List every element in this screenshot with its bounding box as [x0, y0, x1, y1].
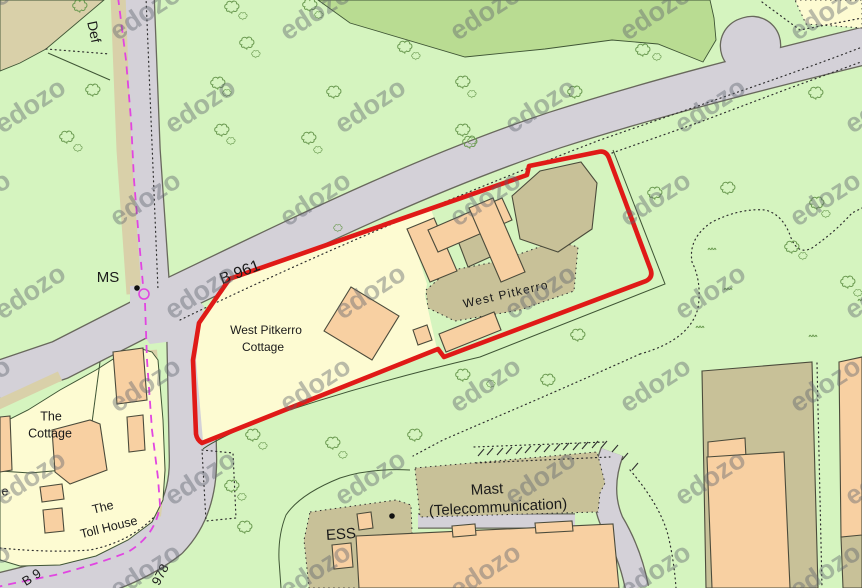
building-cottage-out-2	[127, 415, 145, 452]
building-bottom-tab-2	[535, 521, 573, 533]
building-cottage-out-1	[40, 484, 64, 502]
road-layby-bulge	[749, 45, 752, 46]
building-tollhouse	[43, 508, 64, 533]
label-the-cottage-2: Cottage	[28, 426, 72, 440]
building-ess-hut-1	[357, 512, 373, 530]
mast-symbol-dot-ms	[134, 285, 140, 291]
label-west-pitkerro-cottage-2: Cottage	[242, 340, 284, 354]
map-viewport: DefMSB 961West PitkerroCottageWest Pitke…	[0, 0, 862, 588]
label-the-cottage-1: The	[40, 409, 62, 423]
label-ms: MS	[97, 269, 120, 286]
label-mast-1: Mast	[470, 480, 504, 499]
label-west-pitkerro-cottage-1: West Pitkerro	[230, 323, 302, 337]
building-bottom-tab-1	[452, 524, 476, 537]
building-left-edge	[0, 416, 12, 472]
map-canvas[interactable]: DefMSB 961West PitkerroCottageWest Pitke…	[0, 0, 862, 588]
mast-symbol-dot-ess	[389, 513, 395, 519]
